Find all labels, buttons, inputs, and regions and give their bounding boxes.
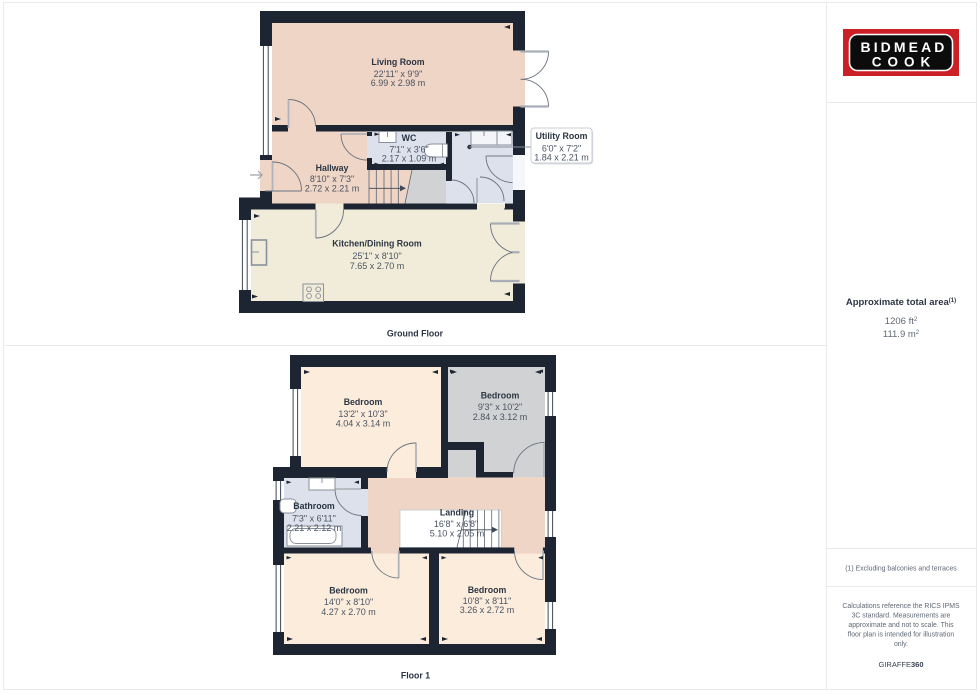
svg-text:Approximate total area(1): Approximate total area(1) [846, 297, 956, 308]
svg-text:2.72 x 2.21 m: 2.72 x 2.21 m [305, 184, 360, 194]
svg-text:Bathroom: Bathroom [293, 501, 335, 511]
svg-text:2.17 x 1.09 m: 2.17 x 1.09 m [382, 154, 437, 164]
svg-text:only.: only. [894, 641, 908, 648]
svg-text:3C standard. Measurements are: 3C standard. Measurements are [852, 613, 951, 620]
svg-text:Calculations reference the RIC: Calculations reference the RICS IPMS [842, 603, 960, 610]
svg-text:2.84 x 3.12 m: 2.84 x 3.12 m [473, 412, 528, 422]
svg-text:Bedroom: Bedroom [329, 586, 368, 596]
svg-text:7.65 x 2.70 m: 7.65 x 2.70 m [350, 261, 405, 271]
svg-text:9'3" x 10'2": 9'3" x 10'2" [478, 402, 522, 412]
svg-text:4.27 x 2.70 m: 4.27 x 2.70 m [321, 607, 376, 617]
svg-text:GIRAFFE360: GIRAFFE360 [878, 660, 923, 669]
svg-text:16'8" x 6'8": 16'8" x 6'8" [434, 519, 478, 529]
svg-text:Kitchen/Dining Room: Kitchen/Dining Room [332, 239, 422, 249]
svg-text:COOK: COOK [872, 55, 937, 70]
svg-text:Utility Room: Utility Room [536, 131, 588, 141]
svg-text:Floor 1: Floor 1 [401, 671, 430, 681]
svg-text:approximate and not to scale.: approximate and not to scale. This [848, 622, 954, 629]
svg-text:4.04 x 3.14 m: 4.04 x 3.14 m [336, 419, 391, 429]
svg-text:(1) Excluding balconies and te: (1) Excluding balconies and terraces [845, 566, 957, 573]
svg-text:Bedroom: Bedroom [468, 585, 507, 595]
svg-text:3.26 x 2.72 m: 3.26 x 2.72 m [460, 605, 515, 615]
svg-text:BIDMEAD: BIDMEAD [860, 39, 947, 55]
svg-text:6.99 x 2.98 m: 6.99 x 2.98 m [371, 78, 426, 88]
svg-text:13'2" x 10'3": 13'2" x 10'3" [338, 409, 387, 419]
svg-text:Bedroom: Bedroom [344, 397, 383, 407]
svg-text:Landing: Landing [440, 508, 474, 518]
svg-text:7'3" x 6'11": 7'3" x 6'11" [292, 514, 336, 524]
svg-text:1.84 x 2.21 m: 1.84 x 2.21 m [534, 153, 589, 163]
svg-text:2.21 x 2.12 m: 2.21 x 2.12 m [287, 523, 342, 533]
svg-text:Living Room: Living Room [371, 57, 424, 67]
svg-text:8'10" x 7'3": 8'10" x 7'3" [310, 174, 354, 184]
svg-text:Ground Floor: Ground Floor [387, 329, 444, 339]
svg-text:floor plan is intended for ill: floor plan is intended for illustration [848, 632, 955, 639]
svg-text:Bedroom: Bedroom [481, 391, 520, 401]
svg-text:25'1" x 8'10": 25'1" x 8'10" [352, 251, 401, 261]
svg-text:14'0" x 8'10": 14'0" x 8'10" [324, 597, 373, 607]
svg-text:Hallway: Hallway [316, 163, 349, 173]
svg-text:111.9 m2: 111.9 m2 [883, 329, 920, 340]
svg-text:WC: WC [402, 133, 417, 143]
svg-text:5.10 x 2.05 m: 5.10 x 2.05 m [430, 529, 485, 539]
svg-text:1206 ft2: 1206 ft2 [885, 316, 918, 327]
